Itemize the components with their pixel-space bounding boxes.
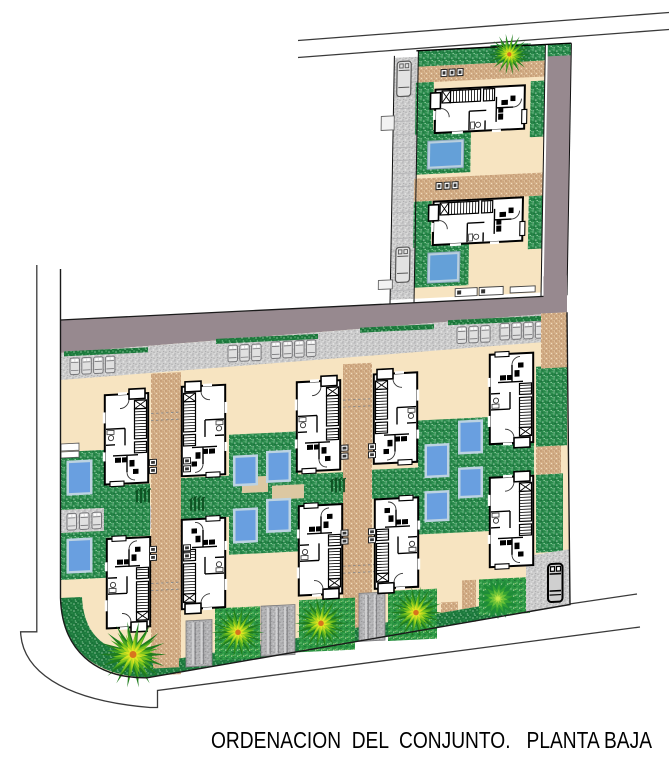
- svg-text:ORDENACION DEL CONJUNTO. P: ORDENACION DEL CONJUNTO. PLANTA BAJA: [211, 727, 653, 753]
